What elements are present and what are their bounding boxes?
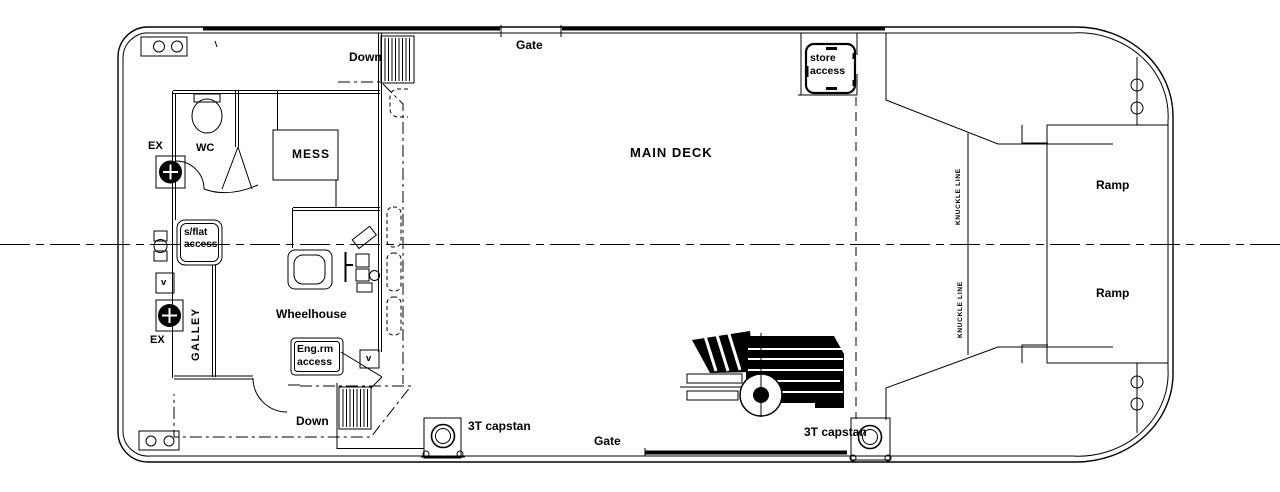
store-access-line1: store — [810, 52, 845, 65]
door-swing-arc — [253, 378, 300, 412]
ex-fan-top — [156, 156, 185, 188]
deckhouse-walls — [173, 33, 383, 388]
engrm-access-line1: Eng.rm — [297, 343, 333, 356]
forklift-silhouette — [680, 331, 844, 417]
store-access-line2: access — [810, 65, 845, 78]
mess-label: MESS — [292, 148, 330, 160]
capstan-left — [421, 418, 465, 458]
gate-top-label: Gate — [516, 39, 543, 51]
deckhouse-side-lockers — [387, 89, 408, 335]
ex-top-label: EX — [148, 141, 163, 152]
engrm-access-label: Eng.rm access — [297, 343, 333, 368]
stairs-top — [381, 36, 414, 83]
ramp-top-label: Ramp — [1096, 179, 1129, 191]
engrm-access-line2: access — [297, 356, 333, 369]
down-bottom-label: Down — [296, 415, 329, 427]
sflat-access-label: s/flat access — [184, 227, 217, 251]
bow-wing-lines — [886, 33, 1113, 420]
ramp-bottom-label: Ramp — [1096, 287, 1129, 299]
centerline-fitting — [154, 231, 167, 261]
gate-opening-ticks — [215, 25, 645, 456]
fairlead-bottom-left — [139, 431, 179, 450]
store-access-label: store access — [810, 52, 845, 77]
knuckle-line-top-label: KNUCKLE LINE — [956, 168, 963, 225]
stairs-bottom — [337, 383, 424, 449]
wc-label: WC — [196, 143, 214, 154]
ex-bottom-label: EX — [150, 335, 165, 346]
capstan-left-label: 3T capstan — [468, 420, 531, 432]
wheelhouse-console — [288, 226, 380, 292]
vent-bottom-label: v — [366, 354, 371, 364]
galley-label: GALLEY — [191, 307, 202, 361]
deck-plan-canvas: MAIN DECK Gate Gate Down Down WC MESS Wh… — [0, 0, 1280, 492]
vent-top-label: v — [161, 278, 166, 288]
sflat-access-line2: access — [184, 239, 217, 251]
fairlead-top-left — [141, 37, 187, 56]
main-deck-label: MAIN DECK — [630, 146, 713, 159]
down-top-label: Down — [349, 51, 382, 63]
gate-bottom-label: Gate — [594, 435, 621, 447]
wheelhouse-label: Wheelhouse — [276, 308, 347, 320]
knuckle-line-bottom-label: KNUCKLE LINE — [958, 281, 965, 338]
ex-fan-bottom — [156, 300, 183, 331]
sflat-access-line1: s/flat — [184, 227, 217, 239]
wc-fittings — [176, 94, 258, 193]
capstan-right-label: 3T capstan — [804, 426, 867, 438]
